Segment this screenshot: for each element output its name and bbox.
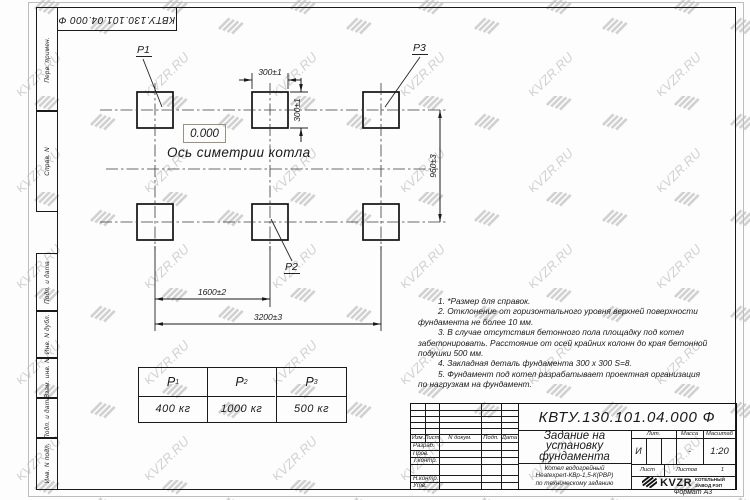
masshtab-header: Масштаб (703, 430, 736, 438)
logo-caption-line: КОТЕЛЬНЫЙ (695, 477, 725, 482)
product-name-line: Heatexpert-КВр-1,5-К(РВР) (536, 472, 614, 480)
lit-header: Лит. (631, 430, 676, 438)
p-sub: 3 (314, 379, 318, 386)
loads-table-value-p2: 1000 кг (208, 397, 275, 421)
format-label: Формат А3 (643, 489, 743, 496)
p-sub: 2 (244, 379, 248, 386)
product-name-line: Котел водогрейный (545, 465, 605, 473)
centerlines (100, 83, 446, 250)
drawing-sheet: KVZR.RU КВТУ.130.101.04.000 Ф Перв. прим… (0, 0, 750, 500)
col-list: Лист (425, 434, 439, 442)
elevation-mark-box: 0.000 (183, 124, 226, 143)
p-label: P (305, 375, 313, 389)
note-line: 4. Закладная деталь фундамента 300 x 300… (418, 358, 738, 368)
listov-value: 1 (721, 467, 724, 473)
foundation-pads (137, 92, 399, 240)
pad-label-p1: P1 (136, 44, 152, 57)
loads-table-value-p3: 500 кг (277, 397, 346, 421)
col-data: Дата (501, 434, 518, 442)
dim-total-span: 3200±3 (238, 312, 298, 322)
p-sub: 1 (175, 379, 179, 386)
sig-utv: Утв. (413, 482, 439, 489)
dim-pad-width: 300±1 (250, 67, 290, 77)
col-n-dokum: N докум. (439, 434, 481, 442)
list-label: Лист (631, 464, 664, 476)
boiler-symmetry-axis-label: Ось симетрии котла (167, 145, 311, 160)
massa-header: Масса (676, 430, 703, 438)
listov-cell: Листов 1 (664, 464, 736, 476)
document-title: Задание на установку фундамента (518, 430, 631, 463)
note-line: подушки 500 мм. (418, 348, 738, 358)
note-line: 2. Отклонение от горизонтального уровня … (418, 306, 738, 316)
sig-razrab: Разраб. (413, 442, 439, 450)
dim-col-pitch: 1600±2 (182, 287, 242, 297)
note-line: 3. В случае отсутствия бетонного пола пл… (418, 327, 738, 337)
document-title-line: фундамента (539, 452, 610, 463)
elevation-mark: 0.000 (190, 128, 219, 140)
kvzr-logo-cell: KVZR КОТЕЛЬНЫЙ ЗАВОД РЭП (631, 476, 736, 489)
p-label: P (167, 375, 175, 389)
note-line: фундамента не более 10 мм. (418, 317, 738, 327)
sig-t-kontr: Т.контр. (413, 457, 439, 464)
massa-value: - (676, 438, 703, 464)
logo-caption-line: ЗАВОД РЭП (695, 483, 725, 488)
technical-notes: 1. *Размер для справок. 2. Отклонение от… (418, 296, 738, 390)
loads-table-header-p3: P3 (277, 368, 346, 397)
loads-table-header-p1: P1 (139, 368, 207, 397)
note-line: 1. *Размер для справок. (418, 296, 738, 306)
product-name-line: по техническому заданию (536, 480, 614, 488)
kvzr-logo-caption: КОТЕЛЬНЫЙ ЗАВОД РЭП (695, 477, 725, 487)
col-izm: Изм. (411, 434, 425, 442)
kvzr-logo-icon (642, 477, 657, 488)
sig-n-kontr: Н.контр. (413, 475, 439, 482)
leader-p3 (385, 57, 420, 107)
loads-table-value-p1: 400 кг (139, 397, 207, 421)
listov-label: Листов (676, 467, 697, 473)
note-line: забетонировать. Расстояние от осей крайн… (418, 338, 738, 348)
product-name: Котел водогрейный Heatexpert-КВр-1,5-К(Р… (518, 463, 631, 489)
loads-table: P1 P2 P3 400 кг 1000 кг 500 кг (138, 367, 347, 423)
lit-value: И (631, 438, 646, 464)
loads-table-header-p2: P2 (208, 368, 275, 397)
dim-pad-height: 300±1 (292, 90, 302, 130)
note-line: по нагрузкам на фундамент. (418, 379, 738, 389)
p-label: P (235, 375, 243, 389)
leader-p1 (143, 59, 162, 107)
pad-label-p3: P3 (412, 42, 428, 55)
masshtab-value: 1:20 (703, 438, 736, 464)
sig-prov: Пров. (413, 450, 439, 457)
title-block: Изм. Лист N докум. Подп. Дата Разраб. Пр… (410, 403, 737, 490)
kvzr-logo-text: KVZR (660, 477, 692, 489)
pad-label-p2: P2 (284, 261, 300, 274)
note-line: 5. Фундамент под котел разрабатывает про… (418, 369, 738, 379)
col-podp: Подп. (481, 434, 501, 442)
dim-row-pitch: 960±3 (428, 146, 438, 186)
title-block-designation: КВТУ.130.101.04.000 Ф (518, 404, 736, 430)
